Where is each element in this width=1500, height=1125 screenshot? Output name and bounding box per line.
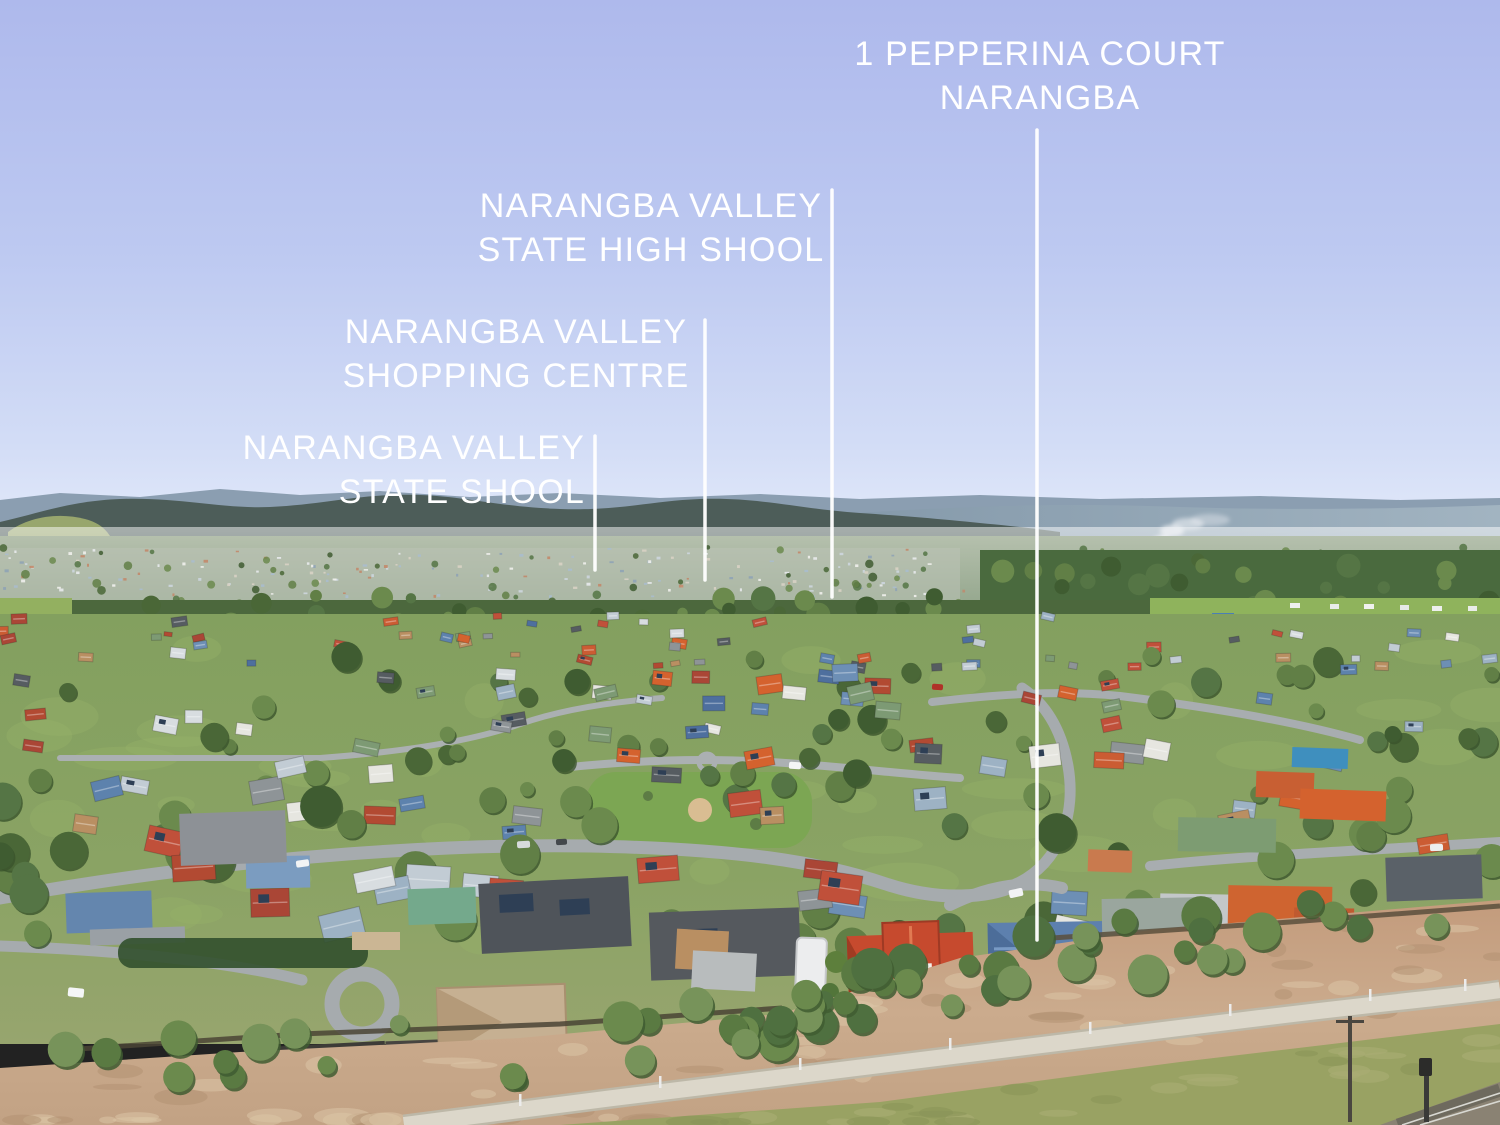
grass-patch (908, 1111, 967, 1117)
distant-roof (905, 570, 908, 572)
tree (1191, 667, 1221, 697)
tree (337, 810, 365, 838)
distant-roof (138, 573, 140, 575)
distant-roof (57, 587, 61, 589)
gum-tree (242, 1024, 279, 1061)
distant-roof (172, 593, 174, 596)
house-blue-left (65, 891, 152, 934)
dirt-patch (1275, 989, 1293, 999)
aerial-photo-canvas (0, 0, 1500, 1125)
distant-roof (793, 580, 797, 583)
house-beige-small (352, 932, 400, 950)
house (728, 790, 764, 818)
house (383, 617, 399, 627)
label-state-school-line2: STATE SHOOL (243, 470, 585, 514)
distant-roof (770, 561, 774, 563)
gum-tree (1111, 908, 1137, 934)
distant-tree (431, 561, 438, 568)
house (1482, 654, 1498, 664)
distant-roof (896, 570, 899, 572)
dirt-patch (112, 1117, 157, 1123)
dirt-patch (1394, 965, 1425, 975)
gum-tree (1347, 915, 1372, 940)
distant-roof (651, 595, 654, 597)
distant-tree (150, 550, 155, 555)
house-roof (1388, 643, 1400, 652)
distant-tree (327, 552, 332, 557)
dirt-patch (1044, 992, 1081, 999)
distant-roof (855, 564, 858, 567)
distant-roof (8, 557, 10, 559)
dirt-patch (558, 1043, 588, 1056)
distant-roof (395, 564, 397, 566)
distant-tree (824, 567, 829, 572)
tree (746, 651, 763, 668)
gum-tree (390, 1015, 409, 1034)
distant-roof (271, 593, 274, 595)
distant-tree (124, 561, 133, 570)
distant-roof (399, 565, 401, 567)
house (1445, 632, 1459, 641)
distant-roof (5, 554, 9, 556)
gum-tree (213, 1050, 237, 1074)
distant-roof (261, 584, 264, 586)
distant-roof (798, 552, 801, 554)
distant-roof (895, 567, 898, 570)
gum-tree (163, 1062, 193, 1092)
house (250, 888, 289, 917)
distant-tree (529, 555, 533, 559)
house (582, 645, 597, 656)
tree (200, 723, 228, 751)
gum-tree (851, 948, 892, 989)
distant-roof (758, 579, 761, 581)
house (962, 662, 977, 671)
distant-roof (169, 585, 173, 587)
house-roof (1229, 636, 1240, 643)
tree (24, 921, 50, 947)
distant-roof (198, 578, 201, 581)
gum-tree (1072, 923, 1099, 950)
gum-tree (1197, 944, 1228, 975)
distant-roof (368, 577, 371, 579)
gum-tree (1424, 914, 1448, 938)
distant-roof (486, 553, 490, 555)
distant-roof (573, 587, 577, 589)
tree (479, 787, 505, 813)
house (966, 624, 980, 634)
house (483, 633, 493, 638)
house (171, 616, 188, 628)
label-shopping-centre-line1: NARANGBA VALLEY (343, 310, 690, 354)
tree (843, 759, 871, 787)
distant-roof (93, 549, 96, 551)
gum-tree (318, 1056, 337, 1075)
gum-tree (625, 1045, 655, 1075)
distant-roof (191, 560, 194, 562)
distant-roof (5, 569, 9, 572)
house (527, 620, 538, 627)
house-slate-right (1385, 854, 1482, 901)
distant-roof (737, 565, 740, 568)
house (73, 814, 99, 835)
distant-roof (657, 557, 661, 560)
distant-roof (865, 571, 869, 574)
tree (1484, 667, 1499, 682)
distant-roof (633, 580, 637, 583)
distant-roof (25, 563, 27, 565)
tree (1025, 562, 1043, 580)
distant-roof (277, 557, 281, 559)
distant-tree (867, 583, 872, 588)
distant-roof (914, 595, 917, 597)
dirt-patch (1271, 960, 1313, 970)
house (235, 722, 252, 736)
house-mint-roof (407, 887, 476, 925)
distant-tree (21, 570, 30, 579)
distant-roof (928, 563, 932, 565)
gum-tree (603, 1001, 643, 1041)
distant-roof (808, 556, 810, 559)
distant-roof (668, 589, 671, 592)
distant-roof (371, 574, 374, 577)
house (979, 756, 1007, 777)
distant-roof (333, 578, 337, 580)
tree (1142, 647, 1160, 665)
solar-panels (645, 862, 657, 870)
house (368, 764, 394, 784)
tree (9, 875, 48, 914)
distant-roof (14, 550, 16, 553)
distant-roof (326, 580, 329, 582)
distant-roof (201, 566, 204, 568)
house (164, 632, 172, 637)
distant-roof (364, 569, 368, 571)
tree (799, 748, 819, 768)
tree (1336, 554, 1360, 578)
distant-tree (488, 583, 496, 591)
house (1068, 662, 1078, 670)
distant-tree (270, 567, 276, 573)
distant-tree (252, 586, 260, 594)
tree (303, 760, 329, 786)
tree (564, 669, 589, 694)
house-roof (1352, 655, 1360, 661)
distant-roof (804, 570, 808, 572)
label-property-line1: 1 PEPPERINA COURT (854, 32, 1225, 76)
house (511, 652, 520, 657)
sky (0, 0, 1500, 560)
house-roof (597, 620, 608, 628)
label-shopping-centre-line2: SHOPPING CENTRE (343, 354, 690, 398)
tree (371, 587, 393, 609)
grass-patch (1039, 1110, 1077, 1117)
distant-roof (310, 572, 313, 575)
distant-roof (480, 574, 482, 576)
tree (650, 738, 667, 755)
house (1046, 655, 1055, 662)
house (377, 672, 394, 684)
solar-panels (656, 674, 662, 679)
gum-tree (941, 994, 963, 1016)
house (1375, 661, 1389, 670)
distant-tree (502, 592, 510, 600)
distant-roof (583, 562, 586, 564)
distant-roof (359, 571, 362, 573)
tree (1101, 557, 1121, 577)
house (760, 806, 784, 824)
tree (28, 769, 51, 792)
house-orange-right2 (1300, 789, 1387, 822)
distant-roof (891, 555, 894, 557)
distant-roof (123, 578, 126, 580)
distant-roof (838, 566, 840, 568)
distant-roof (819, 592, 822, 594)
tree (1171, 574, 1189, 592)
distant-roof (398, 553, 400, 555)
house-roof (670, 660, 680, 667)
tree (926, 588, 943, 605)
solar-panels (920, 792, 929, 799)
distant-roof (882, 594, 886, 596)
dirt-patch (450, 1061, 497, 1068)
distant-tree (324, 564, 330, 570)
lawn-patch (689, 857, 729, 884)
tree (552, 749, 575, 772)
solar-panels (258, 894, 269, 903)
distant-roof (687, 578, 689, 580)
distant-tree (785, 585, 792, 592)
dirt-patch (1398, 944, 1445, 954)
house-gray-ac (179, 810, 287, 866)
tree (581, 807, 617, 843)
distant-roof (204, 560, 208, 563)
distant-tree (633, 553, 639, 559)
distant-roof (256, 571, 259, 573)
tree (1385, 726, 1401, 742)
distant-roof (880, 584, 883, 586)
solar-panels (828, 877, 841, 887)
distant-tree (263, 557, 270, 564)
tree (331, 642, 361, 672)
distant-roof (788, 582, 790, 584)
tree (991, 560, 1014, 583)
tree (812, 724, 831, 743)
distant-roof (88, 577, 91, 579)
house (151, 634, 161, 640)
house-roof (493, 613, 502, 620)
distant-roof (809, 590, 813, 592)
dirt-patch (1328, 980, 1359, 995)
distant-roof (571, 556, 574, 558)
house (692, 671, 710, 684)
house (875, 701, 901, 720)
lawn-patch (962, 778, 1067, 799)
house (832, 663, 858, 682)
tree (405, 747, 431, 773)
distant-roof (363, 564, 367, 566)
tree (1235, 567, 1251, 583)
distant-roof (182, 562, 185, 565)
distant-roof (87, 564, 89, 567)
gum-tree (1012, 915, 1054, 957)
tree (942, 813, 967, 838)
gum-tree (766, 1006, 796, 1036)
distant-roof (687, 552, 690, 554)
grass-patch (1364, 1052, 1406, 1059)
gum-tree (48, 1032, 83, 1067)
distant-tree (311, 579, 319, 587)
house (185, 710, 202, 723)
house (1229, 636, 1240, 643)
house-roof (1046, 655, 1055, 662)
distant-roof (304, 592, 308, 594)
distant-roof (729, 577, 733, 579)
house-roof (164, 632, 172, 637)
distant-roof (487, 574, 489, 577)
distant-roof (68, 552, 72, 555)
house (11, 613, 27, 624)
distant-roof (962, 590, 965, 593)
distant-tree (923, 551, 928, 556)
distant-roof (285, 563, 289, 565)
grass-patch (1000, 1084, 1038, 1096)
house (913, 787, 947, 811)
solar-panels (690, 728, 697, 732)
house (669, 642, 681, 651)
tree (881, 729, 902, 750)
gum-tree (1189, 918, 1214, 943)
label-high-school-line2: STATE HIGH SHOOL (478, 228, 825, 272)
distant-roof (620, 570, 624, 572)
distant-roof (500, 553, 503, 555)
distant-roof (437, 594, 440, 597)
gum-tree (732, 1029, 760, 1057)
distant-roof (29, 566, 33, 568)
dirt-patch (471, 1089, 496, 1098)
distant-roof (356, 568, 359, 571)
lawn-patch (1216, 741, 1303, 770)
tree (1378, 581, 1390, 593)
house (13, 674, 31, 688)
house (1094, 752, 1125, 769)
tree (986, 711, 1006, 731)
tree (771, 772, 795, 796)
roof-ridge (253, 902, 288, 903)
distant-tree (593, 590, 602, 599)
distant-tree (777, 546, 784, 553)
house (1051, 890, 1088, 916)
house-roof (694, 659, 705, 665)
distant-tree (493, 567, 499, 573)
lawn-patch (1394, 640, 1481, 665)
tree (310, 590, 322, 602)
house (607, 612, 619, 620)
label-property-line2: NARANGBA (854, 76, 1225, 120)
distant-tree (678, 579, 683, 584)
distant-tree (92, 579, 101, 588)
distant-roof (624, 578, 628, 580)
house (249, 776, 285, 805)
distant-roof (384, 565, 388, 568)
house (1407, 629, 1421, 638)
house (1029, 743, 1062, 769)
house-roof (483, 633, 493, 638)
distant-roof (647, 582, 651, 584)
tree (251, 593, 272, 614)
distant-roof (327, 573, 329, 575)
house-cream-terracotta (1088, 849, 1133, 873)
tree (1350, 879, 1376, 905)
house (820, 653, 835, 664)
gum-tree (959, 954, 979, 974)
house (857, 652, 871, 663)
house (22, 739, 43, 753)
distant-roof (118, 578, 122, 580)
tree (500, 834, 540, 874)
distant-roof (840, 553, 844, 555)
tree (1195, 559, 1210, 574)
dirt-patch (676, 1066, 724, 1074)
gum-tree (91, 1038, 121, 1068)
distant-tree (868, 573, 877, 582)
distant-roof (3, 587, 6, 590)
gum-tree (1243, 912, 1281, 950)
house-roof (527, 620, 538, 627)
distant-tree (280, 571, 285, 576)
house (639, 619, 648, 625)
tree (252, 695, 275, 718)
gum-tree (500, 1063, 526, 1089)
house (25, 708, 47, 721)
house-roof (1441, 660, 1452, 669)
gum-tree (280, 1018, 310, 1048)
grass-patch (1318, 1057, 1348, 1067)
distant-roof (409, 557, 411, 559)
tree (1291, 665, 1314, 688)
hedge-row (118, 938, 368, 968)
house (653, 663, 663, 669)
house (597, 620, 608, 628)
house (496, 668, 516, 680)
distant-roof (76, 571, 79, 574)
dirt-patch (1028, 1012, 1084, 1020)
distant-roof (20, 561, 24, 563)
house (1256, 692, 1273, 705)
distant-roof (72, 570, 74, 573)
distant-roof (519, 554, 523, 557)
distant-tree (786, 573, 791, 578)
solar-panels (765, 810, 772, 815)
label-state-school-line1: NARANGBA VALLEY (243, 426, 585, 470)
distant-tree (164, 565, 171, 572)
distant-roof (458, 565, 462, 568)
house (589, 726, 612, 743)
house-roof (151, 634, 161, 640)
tree (1367, 731, 1387, 751)
lawn-patch (842, 836, 923, 854)
distant-tree (375, 563, 380, 568)
distant-roof (140, 589, 143, 591)
distant-roof (809, 585, 813, 587)
distant-tree (288, 581, 296, 589)
tree (1320, 582, 1332, 594)
house (651, 767, 681, 784)
gum-tree (833, 991, 857, 1015)
house (670, 629, 685, 638)
tree (520, 782, 534, 796)
house (1388, 643, 1400, 652)
